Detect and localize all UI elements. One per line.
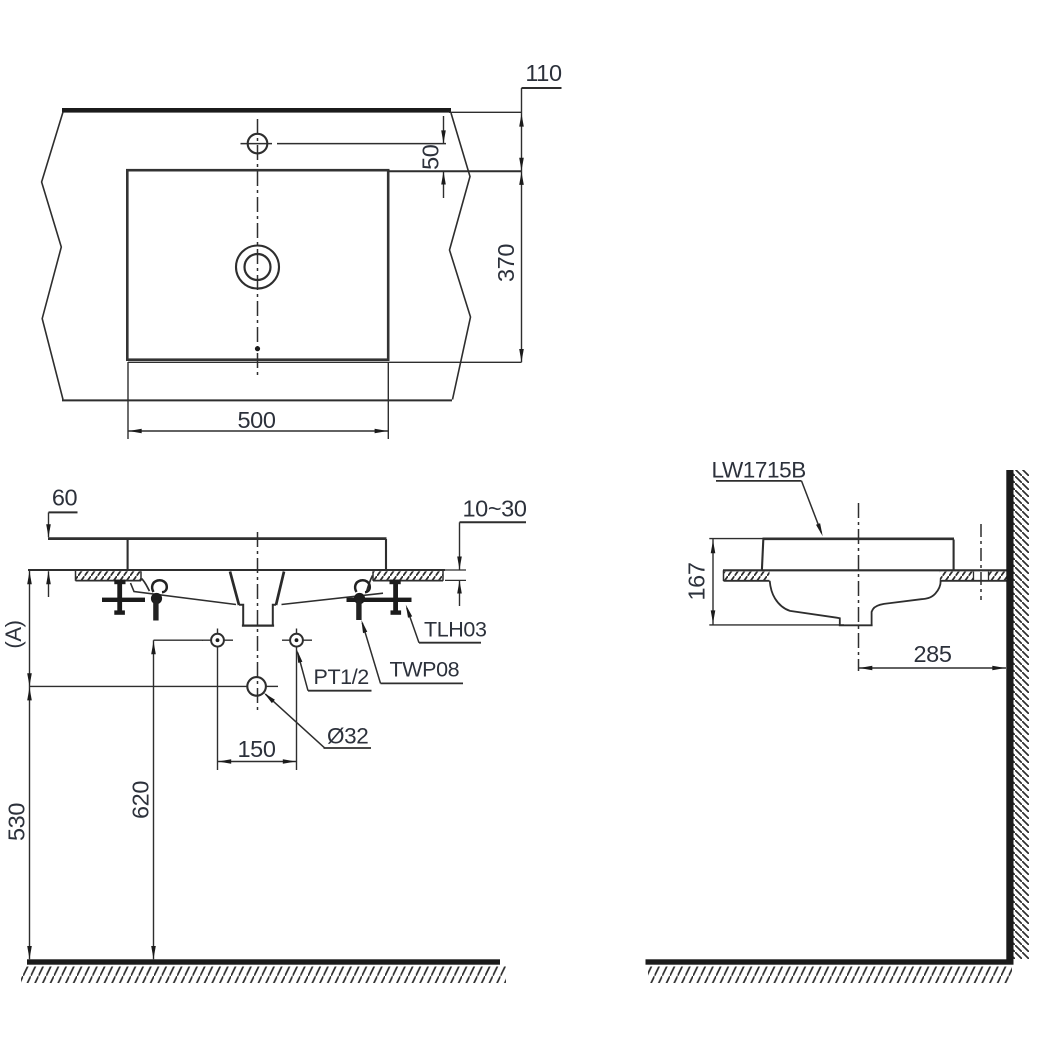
svg-text:167: 167 [684,562,710,600]
svg-text:620: 620 [128,781,154,819]
svg-text:285: 285 [913,641,951,667]
svg-text:110: 110 [525,60,562,86]
svg-text:50: 50 [418,144,444,170]
svg-text:TLH03: TLH03 [424,618,487,642]
svg-text:370: 370 [493,244,519,282]
svg-text:LW1715B: LW1715B [712,458,806,483]
svg-text:TWP08: TWP08 [390,658,460,682]
svg-text:PT1/2: PT1/2 [314,665,369,689]
svg-text:(A): (A) [1,620,26,648]
svg-text:60: 60 [52,485,78,511]
svg-text:150: 150 [237,736,275,762]
svg-text:530: 530 [4,803,30,841]
svg-text:500: 500 [237,407,275,433]
svg-text:10~30: 10~30 [462,496,526,522]
svg-text:Ø32: Ø32 [327,724,368,749]
